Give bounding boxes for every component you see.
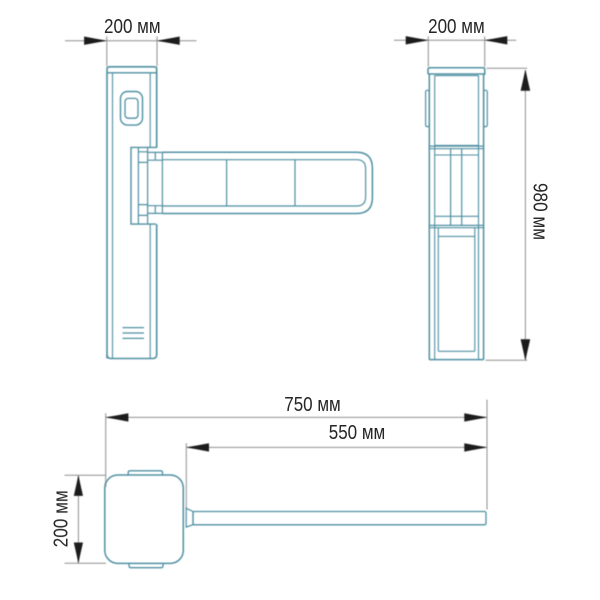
svg-text:750 мм: 750 мм xyxy=(284,394,341,416)
svg-text:200 мм: 200 мм xyxy=(428,16,485,38)
svg-text:980 мм: 980 мм xyxy=(529,183,551,240)
svg-text:200 мм: 200 мм xyxy=(50,490,72,547)
svg-text:200 мм: 200 мм xyxy=(104,16,161,38)
svg-text:550 мм: 550 мм xyxy=(329,422,386,444)
